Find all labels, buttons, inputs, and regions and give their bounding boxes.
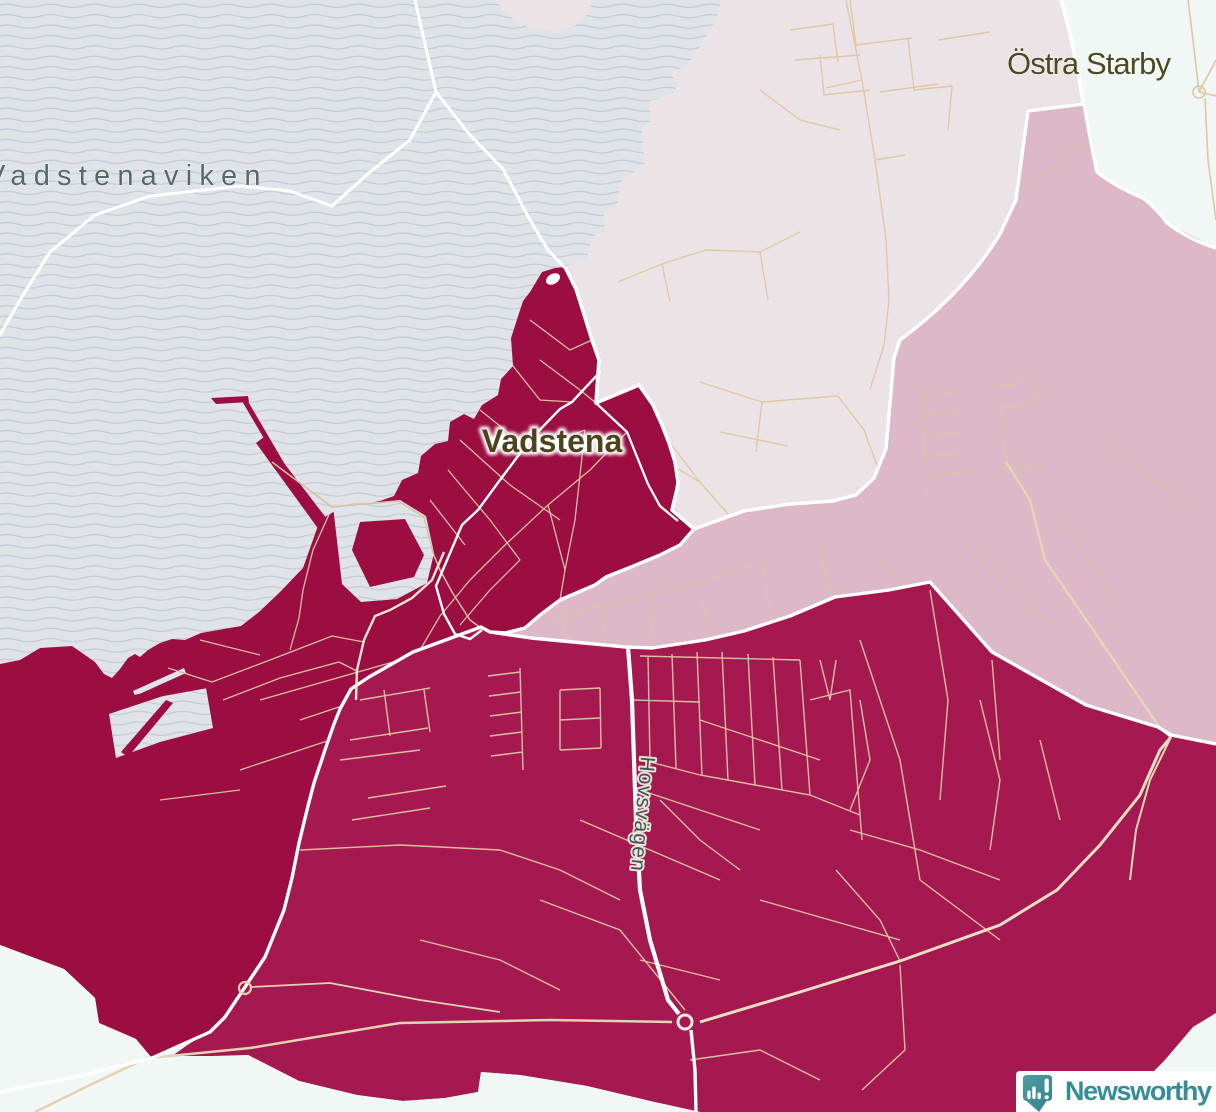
svg-text:Vadstena: Vadstena: [482, 423, 623, 459]
svg-text:Vadstenaviken: Vadstenaviken: [0, 160, 268, 192]
svg-text:Newsworthy: Newsworthy: [1065, 1076, 1212, 1106]
svg-text:Östra Starby: Östra Starby: [1007, 46, 1172, 81]
